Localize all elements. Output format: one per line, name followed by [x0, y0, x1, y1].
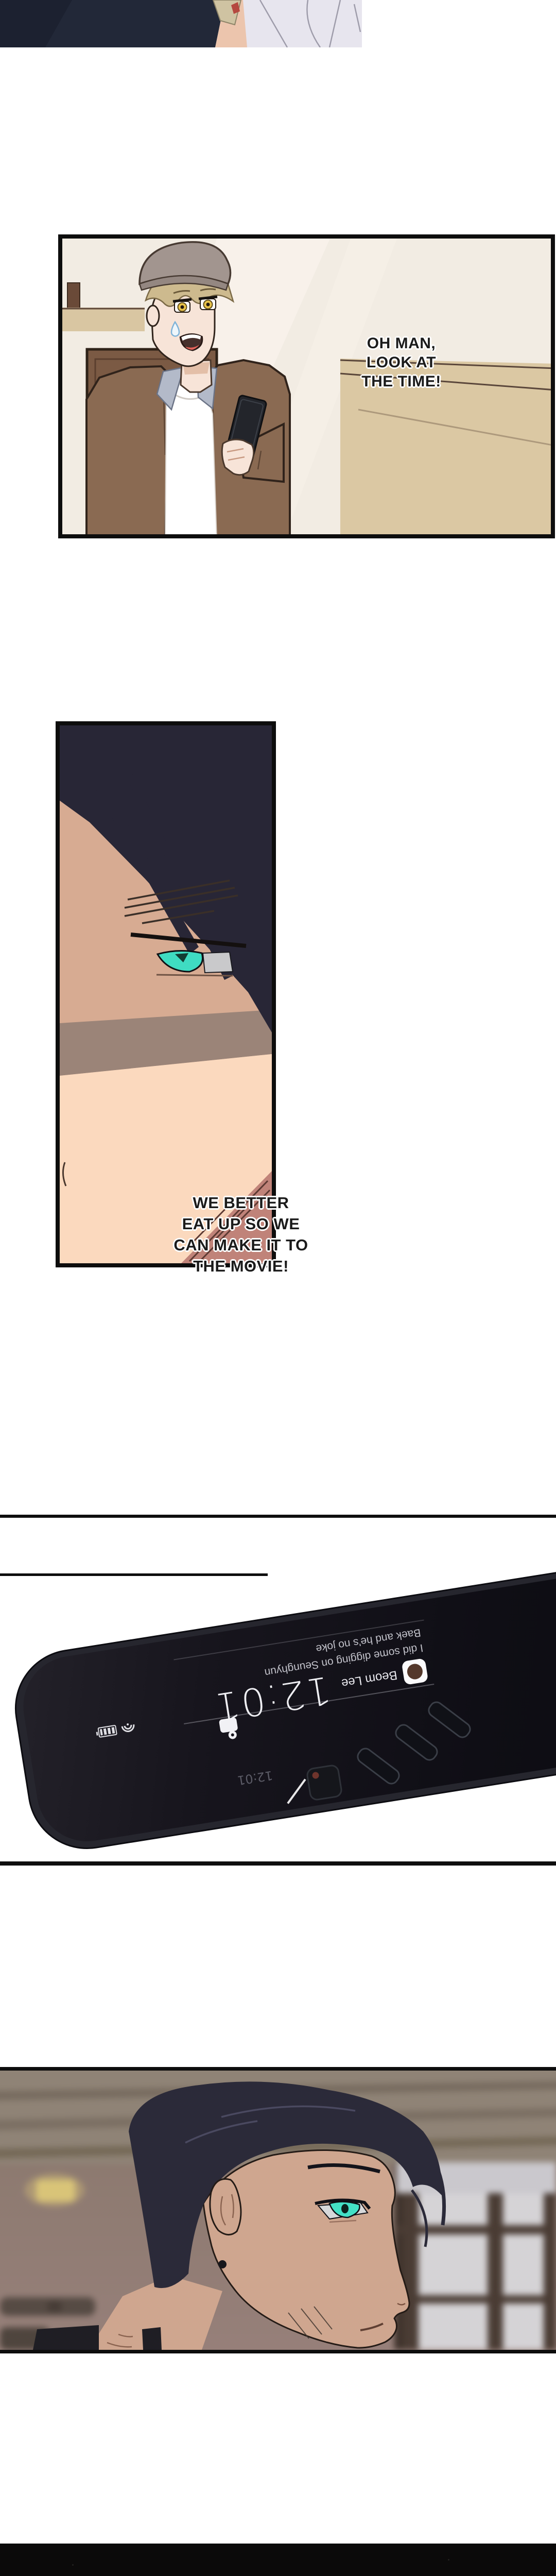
closeup-panel: [56, 721, 276, 1267]
comic-page: OH MAN, LOOK AT THE TIME!: [0, 0, 556, 2576]
phone-camera-module: [305, 1764, 343, 1801]
profile-scene: [0, 2071, 556, 2350]
cafe-scene: [62, 239, 555, 538]
earring: [218, 2260, 227, 2268]
speech-bubble-cafe: OH MAN, LOOK AT THE TIME!: [351, 334, 451, 391]
speech-line: LOOK AT: [351, 353, 451, 372]
speech-line: THE MOVIE!: [164, 1256, 318, 1277]
ear: [147, 306, 159, 326]
battery-icon: [97, 1725, 117, 1738]
status-icons: [97, 1722, 135, 1738]
speech-line: WE BETTER: [164, 1192, 318, 1213]
shirt-strap: [142, 2327, 162, 2350]
cardigan-left: [86, 366, 168, 538]
wood-shelf: [62, 308, 145, 331]
bottom-black-band: [0, 2544, 556, 2576]
speech-line: CAN MAKE IT TO: [164, 1234, 318, 1256]
speech-line: THE TIME!: [351, 372, 451, 391]
notification-sender: Beom Lee: [340, 1667, 398, 1690]
window: [394, 2162, 556, 2350]
screen-content-upside-down: 12:01 12:01 Beom Lee I did some digging …: [16, 1564, 556, 1849]
panel-divider-line: [0, 1515, 556, 1518]
phone-panel-top-border: [0, 1573, 268, 1576]
speech-line: OH MAN,: [351, 334, 451, 353]
signal-icon: [121, 1722, 136, 1734]
speech-line: EAT UP SO WE: [164, 1213, 318, 1234]
edge-reflection-time: 12:01: [229, 1767, 282, 1789]
top-strip-panel: [0, 0, 362, 47]
phone-lock-screen: 12:01 12:01 Beom Lee I did some digging …: [16, 1564, 556, 1849]
phone: 12:01 12:01 Beom Lee I did some digging …: [6, 1556, 556, 1857]
wood-post: [67, 283, 80, 310]
lock-icon: [219, 1717, 238, 1733]
speech-bubble-closeup: WE BETTER EAT UP SO WE CAN MAKE IT TO TH…: [164, 1192, 318, 1277]
panel-divider-line: [0, 1861, 556, 1866]
cafe-panel: [58, 234, 555, 538]
pupil: [341, 2204, 349, 2213]
hand: [222, 439, 254, 475]
avatar: [402, 1658, 429, 1685]
camera-lens: [312, 1772, 320, 1780]
profile-panel: [0, 2067, 556, 2353]
closeup-face: [60, 725, 272, 1263]
